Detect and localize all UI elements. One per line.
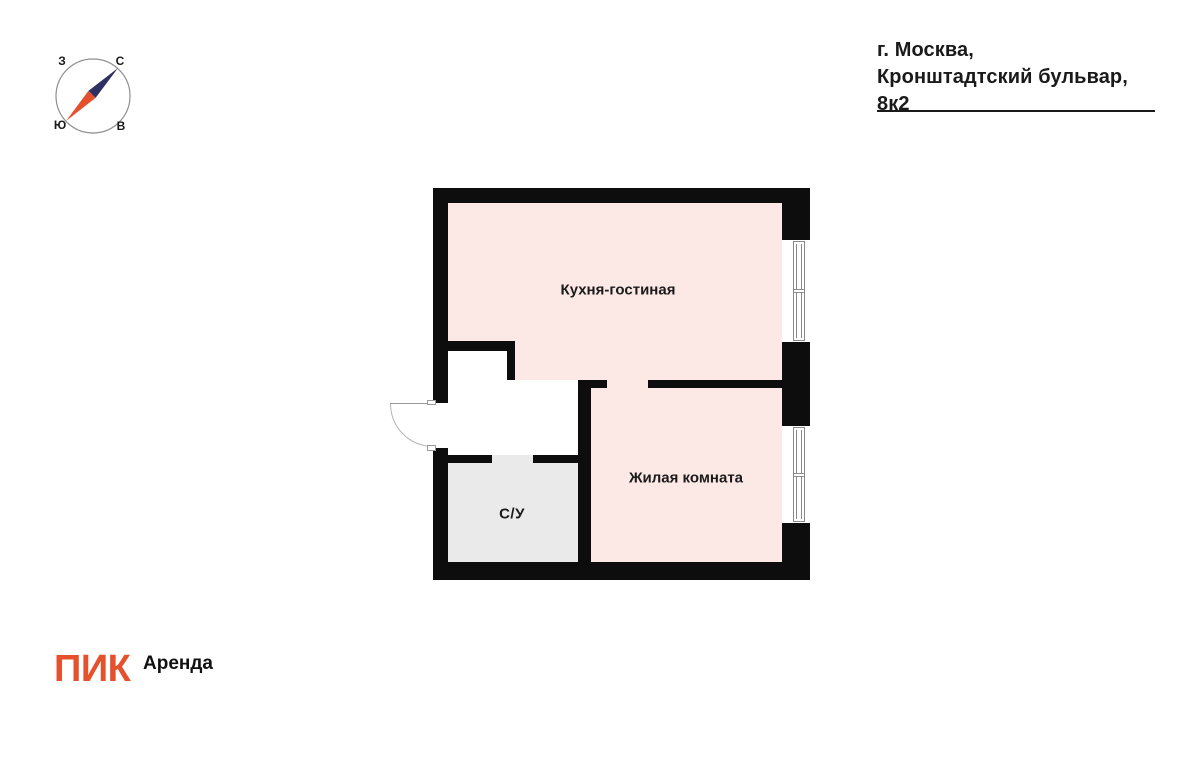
compass-north-label: С — [116, 54, 125, 68]
wall-kitchen-living-left — [578, 380, 607, 388]
floor-plan: Кухня-гостиная Жилая комната С/У — [433, 188, 810, 580]
address-city: г. Москва, — [877, 37, 1157, 64]
pik-logo: ПИК — [54, 650, 130, 688]
room-label-kitchen-living: Кухня-гостиная — [561, 282, 676, 299]
door-jamb-bottom — [427, 445, 436, 451]
window-living-frame — [793, 427, 805, 522]
compass-east-label: В — [117, 119, 126, 133]
wall-bathroom-left — [448, 455, 492, 463]
pik-logo-suffix: Аренда — [143, 654, 213, 673]
wall-living-divider — [578, 380, 591, 562]
compass-south-label: Ю — [54, 118, 66, 132]
compass-west-label: З — [58, 54, 66, 68]
compass: З С Ю В — [38, 41, 148, 151]
room-kitchen-living-area — [448, 203, 782, 341]
room-kitchen-living-area-lower — [515, 341, 782, 380]
address-divider — [877, 110, 1155, 112]
room-label-bathroom: С/У — [499, 506, 525, 523]
compass-rose-icon — [38, 41, 148, 151]
wall-hallway-corner — [507, 341, 515, 380]
address-heading: г. Москва, Кронштадтский бульвар, 8к2 — [877, 37, 1157, 118]
wall-hallway-top — [448, 341, 515, 351]
window-transom — [793, 289, 805, 293]
room-label-living: Жилая комната — [629, 470, 743, 487]
entrance-door-swing-arc — [390, 404, 433, 447]
wall-bathroom-right — [533, 455, 578, 463]
wall-kitchen-living-right — [648, 380, 782, 388]
window-transom — [793, 473, 805, 477]
bathroom-door-opening — [492, 455, 533, 463]
entrance-door-opening — [433, 403, 448, 448]
kitchen-living-door-opening — [607, 380, 648, 388]
window-kitchen-frame — [793, 241, 805, 341]
door-jamb-top — [427, 400, 436, 405]
